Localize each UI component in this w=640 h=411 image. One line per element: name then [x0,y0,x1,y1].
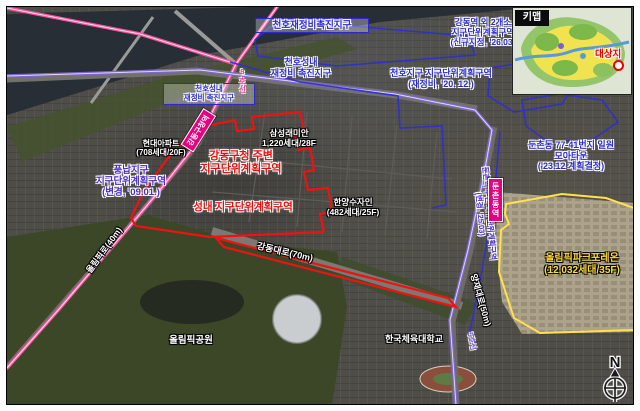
label-seongnae-zone: 성내 지구단위계획구역 [187,201,299,213]
station-dunchon: 둔촌동역 [488,178,503,222]
label-dunchon-moa-town: 둔촌동 77-41번지 일원 모아타운 ('23.12 계획결정) [513,140,629,172]
label-cheonho-district-zone: 천호지구 지구단위계획구역 (재정비, '20. 12.) [383,68,499,89]
keymap-title: 키맵 [515,10,549,26]
label-gangdong-office-zone: 강동구청 주변 지구단위계획구역 [193,150,289,176]
map-screenshot: 천호재정비촉진지구 강동역 외 2개소 지구단위계획구역 (신규지정, '26.… [0,0,640,411]
keymap-panel: 키맵 대상지 [512,7,632,95]
label-line8: 8호선 [237,67,246,94]
label-cheonho-seongnae-promotion: 천호성내 재정비 촉진지구 [259,57,343,78]
label-hanyang-sujain: 한양수자인 (482세대/25F) [313,197,393,217]
label-cheonho-promotion-district: 천호재정비촉진지구 [255,18,369,33]
label-olympic-park-foreon: 올림픽파크포레온 (12,032세대/35F) [525,253,635,277]
label-samsung-raemian: 삼성래미안 1,220세대/28F [247,128,331,148]
label-olympic-park: 올림픽공원 [155,335,227,346]
keymap-target-label: 대상지 [595,46,621,60]
label-pungnap-district-zone: 풍납지구 지구단위계획구역 (변경, '09.01.) [83,165,179,199]
park-lake [140,280,244,324]
aerial-map: 천호재정비촉진지구 강동역 외 2개소 지구단위계획구역 (신규지정, '26.… [6,6,635,406]
keymap-target-marker [613,60,624,71]
compass-north: N [597,351,633,405]
label-korea-sport-university: 한국체육대학교 [369,334,459,345]
